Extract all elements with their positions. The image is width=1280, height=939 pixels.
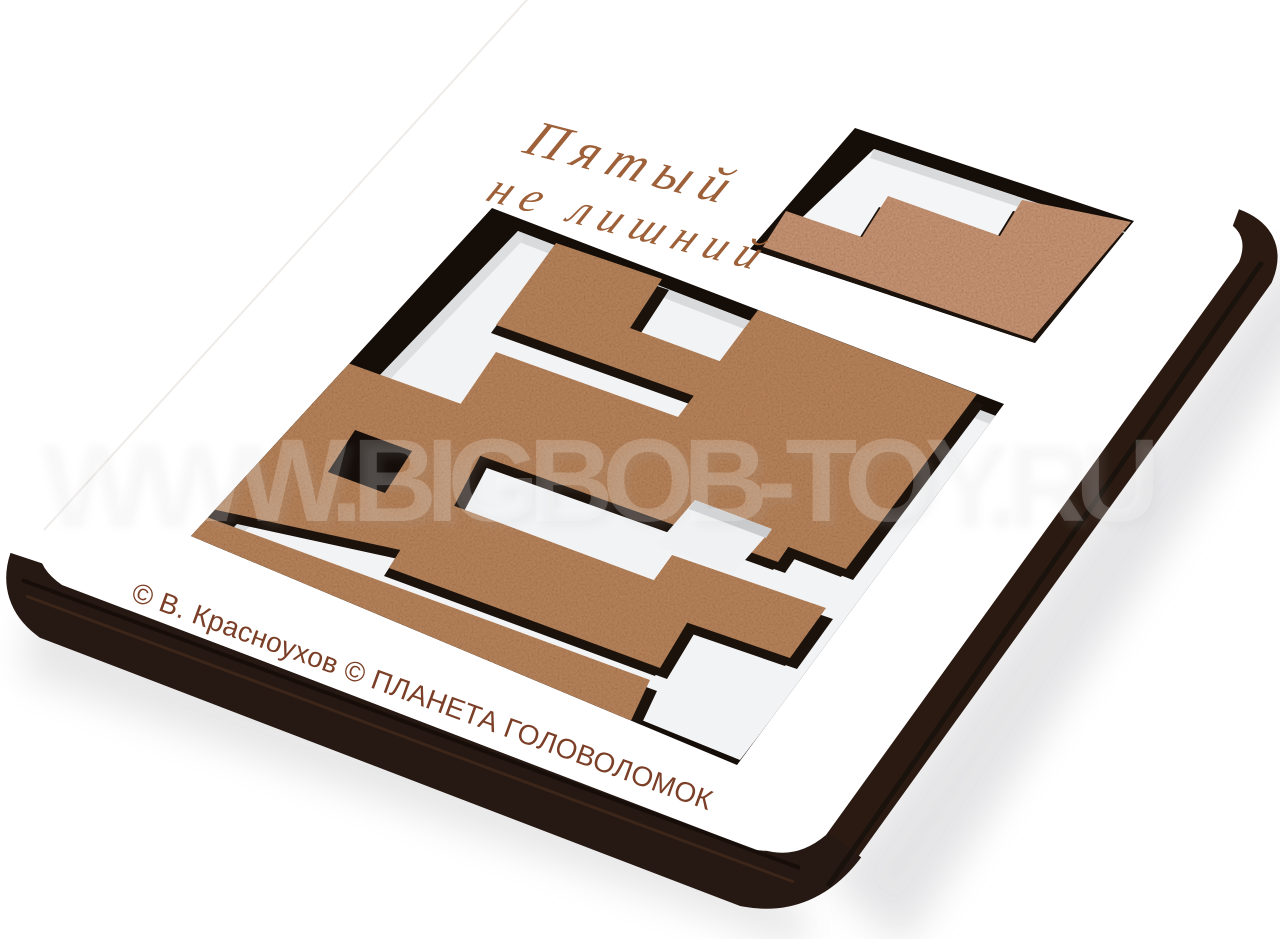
svg-text:WWW.BIGBOB-TOY.RU: WWW.BIGBOB-TOY.RU <box>36 415 1156 547</box>
